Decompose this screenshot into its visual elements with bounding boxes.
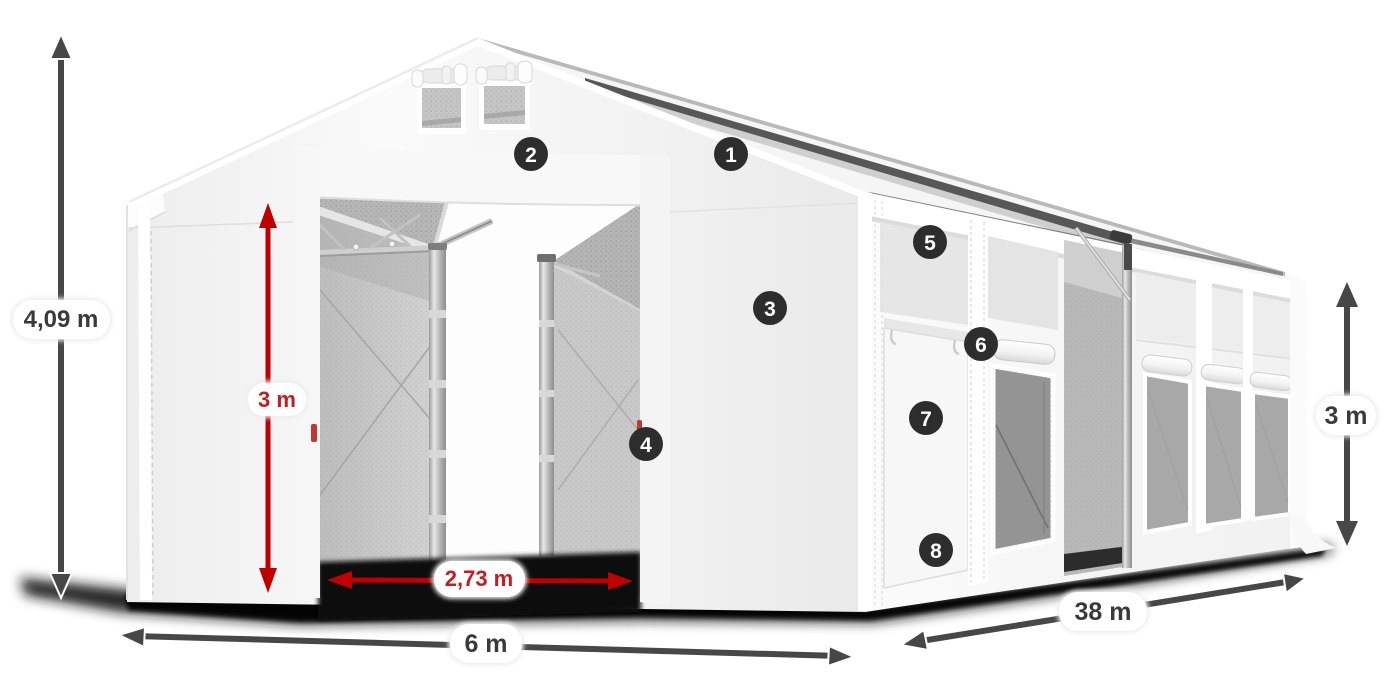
svg-text:8: 8 [930,540,942,563]
svg-text:38 m: 38 m [1075,598,1132,626]
svg-text:2: 2 [525,144,537,167]
svg-text:7: 7 [920,408,932,431]
svg-text:3 m: 3 m [258,387,296,412]
svg-text:1: 1 [725,144,737,167]
svg-text:2,73 m: 2,73 m [445,566,514,591]
svg-text:3 m: 3 m [1324,402,1367,430]
svg-text:4,09 m: 4,09 m [24,306,99,333]
svg-text:6: 6 [975,334,987,357]
svg-text:3: 3 [764,298,776,321]
svg-text:6 m: 6 m [464,630,507,658]
svg-text:4: 4 [640,434,652,457]
svg-text:5: 5 [924,232,936,255]
